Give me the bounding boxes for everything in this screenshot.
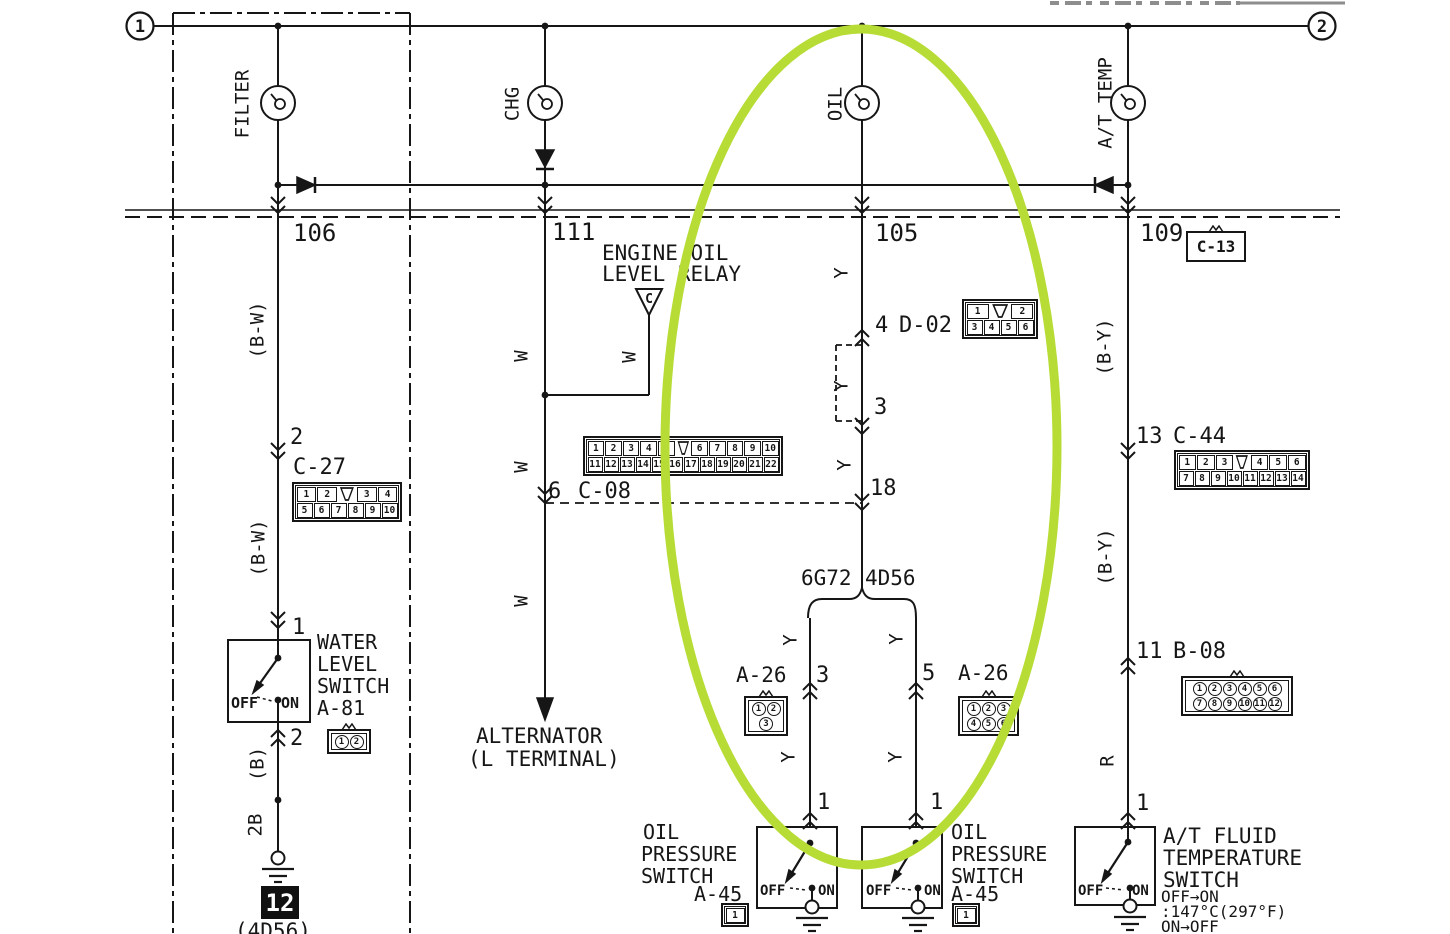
connector-id-d02: D-02 — [899, 315, 952, 337]
circuit-node-right: 2 — [1309, 13, 1336, 40]
connector-a-26: 123456 — [958, 696, 1019, 736]
switch-arm — [1102, 842, 1128, 890]
connector-pin: 9 — [1211, 471, 1226, 486]
connector-pin: 2 — [317, 487, 337, 502]
connector-pin: 2 — [1011, 304, 1033, 319]
connector-pin: 22 — [764, 457, 779, 472]
wire-color-w-relay: W — [621, 351, 640, 362]
wire-gauge-2b: 2B — [247, 814, 266, 837]
water-level-on: ON — [281, 696, 299, 711]
connector-pin: 2 — [767, 702, 781, 716]
connector-a-45: 1 — [952, 903, 980, 927]
water-level-switch-name-2: LEVEL — [317, 654, 377, 674]
oil-switch-left-off: OFF — [760, 884, 785, 898]
connector-cells: 1 — [724, 906, 746, 924]
pin-4-d02: 4 — [875, 315, 888, 337]
wire-color-by-upper: (B-Y) — [1096, 318, 1115, 375]
connector-pin: 3 — [357, 487, 377, 502]
harness-boundary-line — [173, 13, 410, 934]
connector-pin: 16 — [668, 457, 683, 472]
oil-switch-right-on: ON — [924, 884, 941, 898]
connector-id-a26-right: A-26 — [958, 663, 1009, 684]
connector-cells: 12 — [331, 733, 367, 750]
water-level-switch-id: A-81 — [317, 698, 365, 718]
water-level-switch-name-3: SWITCH — [317, 676, 389, 696]
connector-cells: 1 — [955, 906, 977, 924]
pin-6-c08: 6 — [548, 481, 561, 503]
connector-pin: 4 — [1251, 455, 1269, 470]
switch-arm — [892, 843, 916, 890]
connector-cells: 12345678910 — [295, 485, 399, 519]
indicator-lamp-icon — [845, 86, 879, 120]
bus-pin-111: 111 — [552, 220, 595, 244]
keyway-icon — [981, 690, 997, 698]
connector-pin: 8 — [727, 441, 744, 456]
connector-label: C-13 — [1197, 237, 1236, 256]
wire-color-bw-upper: (B-W) — [249, 301, 268, 358]
engine-oil-level-relay-name-2: LEVEL RELAY — [602, 264, 741, 285]
connector-cells: 1234567891011121314 — [1177, 453, 1307, 487]
oil-switch-right-name-2: PRESSURE — [951, 844, 1047, 864]
connector-pin: 9 — [1223, 697, 1237, 711]
atf-switch-note-3: ON→OFF — [1161, 919, 1219, 934]
wire-color-w-2: W — [513, 461, 532, 472]
svg-text:1: 1 — [135, 17, 145, 37]
connector-pin: 17 — [684, 457, 699, 472]
pin-2-a81: 2 — [290, 728, 303, 750]
connector-pin: 14 — [636, 457, 651, 472]
engine-code-6g72: 6G72 — [801, 568, 852, 589]
oil-switch-left-name-2: PRESSURE — [641, 844, 737, 864]
diode-icon — [1095, 177, 1113, 193]
wire-color-w-3: W — [513, 595, 532, 606]
connector-pin: 7 — [1193, 697, 1207, 711]
connector-pin: 1 — [297, 487, 317, 502]
connector-pin: 3 — [1216, 455, 1234, 470]
wire-color-y-7: Y — [887, 751, 906, 762]
water-level-off: OFF — [231, 696, 258, 711]
ground-icon — [902, 901, 934, 932]
pin-1-oil-switch-left: 1 — [817, 792, 830, 814]
oil-switch-right-id: A-45 — [951, 884, 999, 904]
alternator-arrow-icon — [537, 698, 553, 720]
indicator-lamp-icon — [261, 86, 295, 120]
keyway-icon — [1234, 455, 1250, 470]
atf-switch-on: ON — [1132, 884, 1149, 898]
pin-1-atf-switch: 1 — [1136, 793, 1149, 815]
connector-pin: 2 — [605, 441, 622, 456]
connector-a-26: 123 — [744, 696, 788, 736]
keyway-icon — [990, 304, 1010, 319]
keyway-icon — [341, 723, 357, 731]
connector-cells: 123456789101112 — [1185, 680, 1289, 712]
connector-pin: 18 — [700, 457, 715, 472]
connector-pin: 6 — [314, 503, 330, 518]
ground-point-ref-box: 12 — [261, 886, 299, 919]
connector-pin: 4 — [378, 487, 398, 502]
connector-pin: 5 — [1253, 682, 1267, 696]
pin-2-c27: 2 — [290, 427, 303, 449]
at-temp-gauge-label: A/T TEMP — [1097, 57, 1116, 149]
bus-pin-105: 105 — [875, 221, 918, 245]
connector-pin: 1 — [1193, 682, 1207, 696]
chg-gauge-label: CHG — [504, 87, 523, 121]
connector-pin: 4 — [984, 320, 1000, 335]
connector-pin: 3 — [997, 702, 1011, 716]
connector-c-27: 12345678910 — [292, 482, 402, 522]
connector-pin: 6 — [1268, 682, 1282, 696]
pin-5-a26: 5 — [922, 663, 935, 685]
connector-pin: 3 — [1223, 682, 1237, 696]
connector-cells: 123456 — [965, 302, 1035, 336]
connector-pin: 7 — [331, 503, 347, 518]
connector-pin: 1 — [967, 304, 989, 319]
connector-pin: 3 — [623, 441, 640, 456]
connector-pin: 3 — [967, 320, 983, 335]
connector-pin: 8 — [1195, 471, 1210, 486]
pin-1-a81: 1 — [292, 617, 305, 639]
connector-pin: 11 — [1253, 697, 1267, 711]
wire-color-bw-lower: (B-W) — [250, 519, 269, 576]
connector-pin: 1 — [752, 702, 766, 716]
connector-pin: 2 — [982, 702, 996, 716]
connector-id-c27: C-27 — [293, 457, 346, 479]
connector-pin: 4 — [640, 441, 657, 456]
pin-11-b08: 11 — [1136, 641, 1163, 663]
oil-switch-right-off: OFF — [866, 884, 891, 898]
bus-pin-106: 106 — [293, 221, 336, 245]
connector-pin: 5 — [658, 441, 675, 456]
pin-18: 18 — [870, 478, 897, 500]
connector-cells: 12345678910111213141516171819202122 — [586, 439, 780, 473]
oil-gauge-label: OIL — [827, 87, 846, 121]
connector-pin: 6 — [1288, 455, 1306, 470]
connector-id-c44: C-44 — [1173, 426, 1226, 448]
connector-pin: 13 — [1275, 471, 1290, 486]
pin-3-d02: 3 — [874, 397, 887, 419]
connector-pin: 4 — [1238, 682, 1252, 696]
wire-color-y-4: Y — [782, 634, 801, 645]
keyway-icon — [338, 487, 356, 502]
wire-color-b: (B) — [249, 747, 268, 781]
connector-a-81: 12 — [327, 729, 371, 754]
atf-switch-off: OFF — [1078, 884, 1103, 898]
filter-gauge-label: FILTER — [234, 70, 253, 139]
connector-cells: 123456 — [962, 700, 1015, 732]
keyway-icon — [1229, 670, 1245, 678]
connector-pin: 6 — [997, 717, 1011, 731]
engine-split-brace — [808, 588, 916, 618]
wire-color-r: R — [1099, 755, 1118, 766]
connector-pin: 13 — [620, 457, 635, 472]
connector-pin: 5 — [1269, 455, 1287, 470]
connector-c-44: 1234567891011121314 — [1174, 450, 1310, 490]
connector-pin: 14 — [1291, 471, 1306, 486]
connector-pin: 2 — [1208, 682, 1222, 696]
oil-switch-left-id: A-45 — [694, 884, 742, 904]
connector-pin: 1 — [726, 908, 745, 923]
connector-pin: 1 — [588, 441, 605, 456]
svg-text:2: 2 — [1317, 17, 1327, 37]
connector-pin: 10 — [762, 441, 779, 456]
connector-pin: 9 — [365, 503, 381, 518]
alternator-name-1: ALTERNATOR — [476, 726, 602, 747]
switch-arm — [786, 843, 810, 890]
connector-pin: 8 — [1208, 697, 1222, 711]
alternator-name-2: (L TERMINAL) — [468, 749, 620, 770]
oil-switch-right-name-1: OIL — [951, 822, 987, 842]
connector-pin: 8 — [348, 503, 364, 518]
diode-icon — [536, 150, 554, 169]
wire-color-y-3: Y — [836, 459, 855, 470]
connector-pin: 5 — [297, 503, 313, 518]
oil-switch-left-name-1: OIL — [643, 822, 679, 842]
connector-pin: 5 — [982, 717, 996, 731]
engine-oil-level-relay-icon: C — [636, 289, 662, 315]
connector-pin: 10 — [382, 503, 398, 518]
connector-pin: 4 — [967, 717, 981, 731]
wiring-diagram-page: 12C 123456789101234567891011121314151617… — [0, 0, 1450, 934]
connector-pin: 6 — [1018, 320, 1034, 335]
connector-id-b08: B-08 — [1173, 641, 1226, 663]
connector-pin: 5 — [1001, 320, 1017, 335]
connector-pin: 6 — [691, 441, 708, 456]
connector-pin: 19 — [716, 457, 731, 472]
connector-c-13: C-13 — [1186, 231, 1246, 262]
oil-switch-left-on: ON — [818, 884, 835, 898]
pin-3-a26: 3 — [816, 665, 829, 687]
engine-code-4d56-bottom: (4D56) — [235, 921, 311, 934]
wire-color-y-2: Y — [833, 380, 852, 391]
indicator-lamp-icon — [528, 86, 562, 120]
pin-1-oil-switch-right: 1 — [930, 792, 943, 814]
engine-oil-level-relay-name-1: ENGINE OIL — [602, 243, 728, 264]
connector-pin: 10 — [1227, 471, 1242, 486]
atf-switch-name-1: A/T FLUID — [1163, 826, 1277, 847]
bus-pin-109: 109 — [1140, 221, 1183, 245]
connector-pin: 2 — [350, 735, 364, 749]
connector-pin: 1 — [335, 735, 349, 749]
connector-b-08: 123456789101112 — [1181, 676, 1293, 716]
ground-icon — [262, 852, 294, 883]
connector-pin: 20 — [732, 457, 747, 472]
connector-pin: 9 — [744, 441, 761, 456]
connector-pin: 1 — [957, 908, 976, 923]
water-level-switch-name-1: WATER — [317, 632, 377, 652]
keyway-icon — [676, 441, 691, 456]
svg-text:C: C — [645, 292, 653, 307]
connector-pin: 2 — [1197, 455, 1215, 470]
connector-d-02: 123456 — [962, 299, 1038, 339]
connector-pin: 11 — [1243, 471, 1258, 486]
connector-pin: 1 — [1179, 455, 1197, 470]
connector-a-45: 1 — [721, 903, 749, 927]
connector-pin: 11 — [588, 457, 603, 472]
connector-pin: 7 — [709, 441, 726, 456]
keyway-icon — [1208, 225, 1224, 233]
connector-pin: 21 — [748, 457, 763, 472]
connector-pin: 3 — [759, 717, 773, 731]
ground-icon — [796, 901, 828, 932]
connector-id-c08: C-08 — [578, 481, 631, 503]
keyway-icon — [758, 690, 774, 698]
wire-color-by-lower: (B-Y) — [1097, 528, 1116, 585]
connector-pin: 12 — [1259, 471, 1274, 486]
engine-code-4d56: 4D56 — [865, 568, 916, 589]
wire-color-y-5: Y — [888, 633, 907, 644]
connector-pin: 10 — [1238, 697, 1252, 711]
connector-id-a26-left: A-26 — [736, 665, 787, 686]
connector-cells: 123 — [748, 700, 784, 732]
wire-color-y-6: Y — [780, 751, 799, 762]
connector-pin: 1 — [967, 702, 981, 716]
connector-pin: 12 — [604, 457, 619, 472]
connector-pin: 7 — [1179, 471, 1194, 486]
connector-pin: 15 — [652, 457, 667, 472]
atf-switch-name-2: TEMPERATURE — [1163, 848, 1302, 869]
wire-color-y-1: Y — [833, 267, 852, 278]
connector-c-08: 12345678910111213141516171819202122 — [583, 436, 783, 476]
circuit-node-left: 1 — [127, 13, 154, 40]
pin-13-c44: 13 — [1136, 426, 1163, 448]
ground-point-ref: 12 — [266, 889, 295, 917]
wire-color-w-1: W — [513, 350, 532, 361]
connector-pin: 12 — [1268, 697, 1282, 711]
diode-icon — [297, 177, 315, 193]
